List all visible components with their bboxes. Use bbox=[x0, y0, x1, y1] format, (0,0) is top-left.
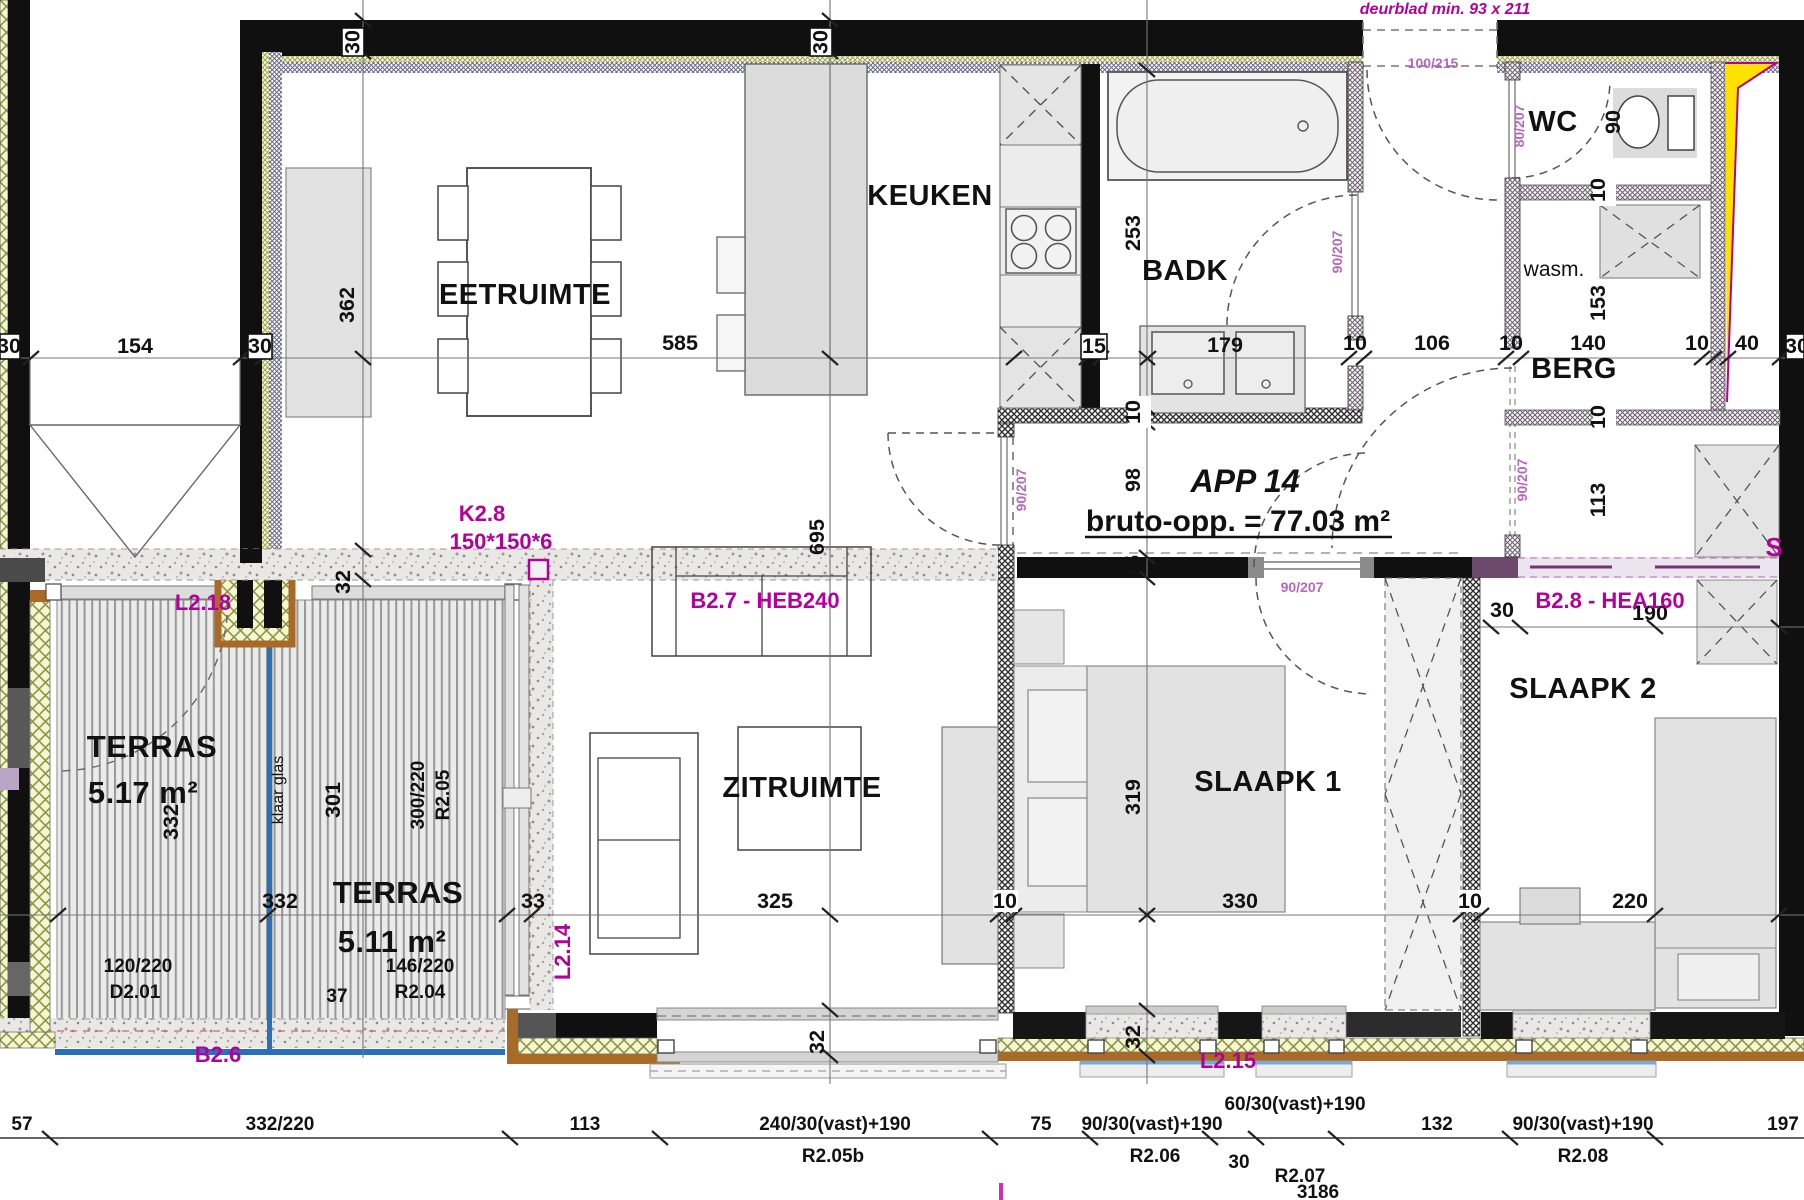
svg-text:300/220: 300/220 bbox=[408, 761, 429, 830]
svg-text:10: 10 bbox=[1499, 331, 1523, 355]
svg-text:15: 15 bbox=[1121, 555, 1145, 579]
svg-text:90/30(vast)+190: 90/30(vast)+190 bbox=[1512, 1114, 1653, 1135]
svg-text:32: 32 bbox=[1121, 1025, 1145, 1049]
svg-text:R2.06: R2.06 bbox=[1130, 1146, 1181, 1167]
svg-text:75: 75 bbox=[1030, 1114, 1052, 1135]
svg-text:319: 319 bbox=[1121, 779, 1145, 815]
svg-text:R2.04: R2.04 bbox=[395, 982, 446, 1003]
svg-text:10: 10 bbox=[993, 889, 1017, 913]
svg-text:90/207: 90/207 bbox=[1013, 468, 1029, 511]
svg-text:40: 40 bbox=[1735, 331, 1759, 355]
svg-text:klaar glas: klaar glas bbox=[270, 756, 287, 824]
svg-text:132: 132 bbox=[1421, 1114, 1453, 1135]
svg-text:301: 301 bbox=[321, 782, 345, 818]
svg-text:R2.08: R2.08 bbox=[1558, 1146, 1609, 1167]
svg-text:585: 585 bbox=[662, 331, 698, 355]
svg-text:332/220: 332/220 bbox=[246, 1114, 315, 1135]
svg-text:57: 57 bbox=[11, 1114, 32, 1135]
svg-text:146/220: 146/220 bbox=[386, 956, 455, 977]
svg-text:30: 30 bbox=[1785, 334, 1804, 358]
svg-text:ZITRUIMTE: ZITRUIMTE bbox=[722, 772, 881, 804]
svg-text:98: 98 bbox=[1121, 468, 1145, 492]
svg-text:30: 30 bbox=[0, 334, 21, 358]
svg-text:90: 90 bbox=[1601, 110, 1625, 134]
svg-text:R2.05b: R2.05b bbox=[802, 1146, 864, 1167]
svg-text:113: 113 bbox=[570, 1114, 601, 1135]
svg-text:120/220: 120/220 bbox=[104, 956, 173, 977]
svg-text:60/30(vast)+190: 60/30(vast)+190 bbox=[1224, 1094, 1365, 1115]
svg-text:90/207: 90/207 bbox=[1281, 579, 1324, 595]
svg-text:SLAAPK 2: SLAAPK 2 bbox=[1509, 673, 1656, 705]
svg-text:L2.15: L2.15 bbox=[1200, 1048, 1256, 1073]
svg-text:15: 15 bbox=[1082, 334, 1106, 358]
svg-text:TERRAS: TERRAS bbox=[87, 729, 217, 764]
svg-text:10: 10 bbox=[1685, 331, 1709, 355]
svg-text:330: 330 bbox=[1222, 889, 1258, 913]
svg-text:253: 253 bbox=[1121, 215, 1145, 251]
svg-text:332: 332 bbox=[262, 889, 298, 913]
svg-text:150*150*6: 150*150*6 bbox=[450, 529, 553, 554]
svg-text:32: 32 bbox=[331, 570, 355, 594]
svg-text:80/207: 80/207 bbox=[1511, 104, 1527, 147]
svg-text:deurblad min. 93 x 211: deurblad min. 93 x 211 bbox=[1360, 1, 1531, 18]
svg-text:30: 30 bbox=[248, 334, 272, 358]
svg-text:30: 30 bbox=[1228, 1152, 1249, 1173]
svg-text:362: 362 bbox=[335, 287, 359, 323]
svg-text:10: 10 bbox=[1458, 889, 1482, 913]
svg-text:197: 197 bbox=[1767, 1114, 1799, 1135]
svg-text:10: 10 bbox=[1121, 400, 1145, 424]
svg-text:30: 30 bbox=[341, 30, 365, 54]
svg-text:240/30(vast)+190: 240/30(vast)+190 bbox=[759, 1114, 911, 1135]
svg-text:BERG: BERG bbox=[1531, 353, 1617, 385]
svg-text:113: 113 bbox=[1586, 483, 1610, 518]
svg-text:D2.01: D2.01 bbox=[110, 982, 161, 1003]
svg-text:90/207: 90/207 bbox=[1514, 458, 1530, 501]
svg-text:B2.7 - HEB240: B2.7 - HEB240 bbox=[690, 588, 839, 613]
svg-text:wasm.: wasm. bbox=[1523, 258, 1585, 281]
svg-text:SLAAPK 1: SLAAPK 1 bbox=[1194, 766, 1341, 798]
svg-text:S: S bbox=[1765, 532, 1782, 562]
svg-text:B2.8 - HEA160: B2.8 - HEA160 bbox=[1535, 588, 1684, 613]
svg-text:10: 10 bbox=[1586, 178, 1610, 202]
svg-text:154: 154 bbox=[117, 334, 153, 358]
svg-text:B2.6: B2.6 bbox=[195, 1042, 241, 1067]
svg-text:BADK: BADK bbox=[1142, 255, 1228, 287]
svg-text:R2.05: R2.05 bbox=[433, 769, 454, 820]
svg-text:90/30(vast)+190: 90/30(vast)+190 bbox=[1081, 1114, 1222, 1135]
svg-text:L2.18: L2.18 bbox=[175, 590, 231, 615]
svg-text:30: 30 bbox=[1490, 598, 1514, 622]
svg-text:WC: WC bbox=[1528, 106, 1577, 138]
svg-text:37: 37 bbox=[326, 986, 347, 1007]
svg-text:33: 33 bbox=[521, 889, 545, 913]
svg-text:30: 30 bbox=[809, 30, 833, 54]
svg-text:EETRUIMTE: EETRUIMTE bbox=[439, 279, 611, 311]
svg-text:140: 140 bbox=[1570, 331, 1606, 355]
svg-text:325: 325 bbox=[757, 889, 793, 913]
svg-text:106: 106 bbox=[1414, 331, 1450, 355]
svg-text:bruto-opp. = 77.03 m²: bruto-opp. = 77.03 m² bbox=[1086, 505, 1390, 538]
svg-text:5.17 m²: 5.17 m² bbox=[88, 775, 198, 810]
svg-text:APP 14: APP 14 bbox=[1189, 463, 1299, 499]
svg-text:179: 179 bbox=[1207, 333, 1243, 357]
svg-text:10: 10 bbox=[1343, 331, 1367, 355]
svg-text:100/215: 100/215 bbox=[1408, 55, 1459, 71]
svg-text:3186: 3186 bbox=[1297, 1182, 1339, 1200]
svg-text:220: 220 bbox=[1612, 889, 1648, 913]
svg-text:695: 695 bbox=[805, 519, 829, 555]
svg-text:5.11 m²: 5.11 m² bbox=[338, 924, 447, 959]
svg-text:TERRAS: TERRAS bbox=[333, 875, 463, 910]
svg-text:L2.14: L2.14 bbox=[550, 923, 575, 980]
svg-text:K2.8: K2.8 bbox=[459, 501, 505, 526]
svg-text:90/207: 90/207 bbox=[1329, 230, 1345, 273]
svg-text:32: 32 bbox=[805, 1030, 829, 1054]
svg-text:10: 10 bbox=[1586, 405, 1610, 429]
svg-text:KEUKEN: KEUKEN bbox=[867, 180, 992, 212]
svg-text:153: 153 bbox=[1586, 285, 1610, 321]
